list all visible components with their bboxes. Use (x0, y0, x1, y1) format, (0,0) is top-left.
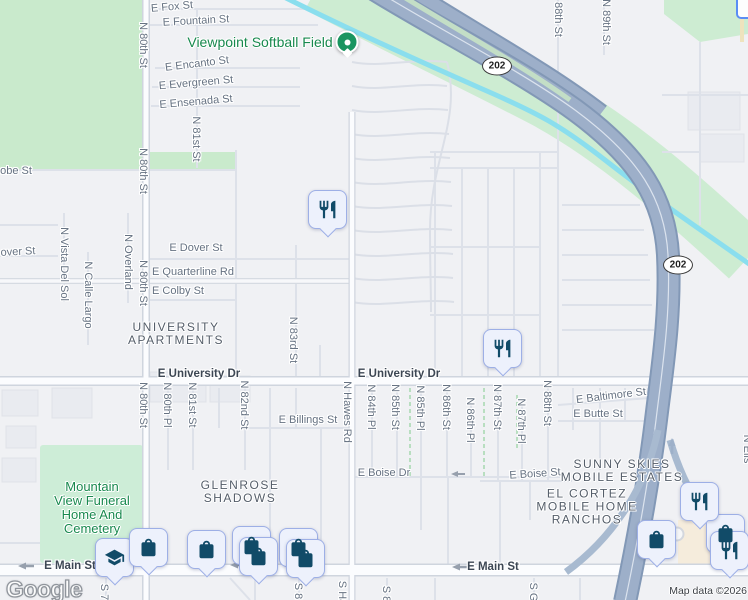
street-label-vertical: N 86th St (440, 384, 452, 430)
street-label-vertical: N 82nd St (238, 381, 250, 430)
area-label: UNIVERSITY APARTMENTS (128, 321, 224, 347)
subdivision-roads (352, 61, 454, 312)
shopping-bag-icon (196, 539, 217, 560)
street-label: E Butte St (573, 408, 623, 420)
street-label: E Main St (467, 561, 519, 573)
restaurant-icon (492, 338, 513, 359)
park-label: Viewpoint Softball Field (187, 35, 332, 49)
street-label-vertical: S 8 (292, 583, 304, 600)
street-label: E University Dr (358, 368, 440, 380)
google-logo[interactable]: Google (6, 576, 82, 600)
map-canvas[interactable]: E Fox StE Fountain StE Encanto StE Everg… (0, 0, 748, 600)
street-label-vertical: N Hawes Rd (341, 381, 353, 443)
route-shield: 202 (482, 57, 512, 76)
street-label-vertical: N 85th Pl (414, 385, 426, 430)
street-label: E Boise Dr (358, 467, 411, 479)
street-label: E Colby St (152, 285, 204, 297)
route-shield: 202 (663, 256, 693, 275)
restaurant-pin[interactable] (483, 329, 522, 368)
street-label-vertical: N 80th Pl (161, 382, 173, 427)
street-label-vertical: N 84th Pl (365, 384, 377, 429)
park-poi-marker[interactable] (336, 31, 359, 54)
street-label: obe St (0, 165, 32, 177)
map-attribution: Map data ©2026 (669, 585, 747, 597)
restaurant-icon (317, 199, 338, 220)
street-label-vertical: N 87th St (491, 384, 503, 430)
shopping-bag-pin[interactable] (637, 520, 676, 559)
shopping-bag-icon (138, 537, 159, 558)
street-label-vertical: N 83rd St (287, 317, 299, 363)
street-label-vertical: N 81st St (190, 116, 202, 161)
area-label: SUNNY SKIES MOBILE ESTATES (561, 458, 684, 484)
street-label-vertical: N 87th Pl (515, 398, 527, 443)
street-label-vertical: S 7 (98, 584, 110, 600)
street-label: E Main St (44, 560, 96, 572)
street-label: E Billings St (279, 414, 338, 426)
street-label-vertical: S G (527, 583, 539, 600)
street-label-vertical: S 8 (380, 586, 392, 600)
street-label-vertical: N 81st St (186, 382, 198, 427)
graduation-cap-icon (104, 547, 125, 568)
street-label-vertical: N 86th Pl (464, 397, 476, 442)
street-label-vertical: N Ells (741, 435, 748, 464)
street-label-vertical: N 85th St (389, 384, 401, 430)
street-label-vertical: N 80th St (137, 22, 149, 68)
restaurant-pin[interactable] (308, 190, 347, 229)
shopping-bag-pin[interactable] (129, 528, 168, 567)
street-label: E University Dr (158, 368, 240, 380)
street-label: E Dover St (169, 242, 222, 254)
street-label-vertical: N Vista Del Sol (58, 227, 70, 301)
shopping-bag-icon (248, 546, 269, 567)
area-label: GLENROSE SHADOWS (201, 479, 280, 505)
restaurant-icon (689, 491, 710, 512)
restaurant-pin[interactable] (680, 482, 719, 521)
shopping-bag-pin[interactable] (187, 530, 226, 569)
street-label-vertical: N 88th St (552, 0, 564, 37)
street-label-vertical: N 80th St (137, 260, 149, 306)
shopping-bag-icon (295, 548, 316, 569)
street-label: over St (0, 245, 35, 259)
street-label-vertical: N 88th St (541, 380, 553, 426)
street-label-vertical: N 80th St (137, 148, 149, 194)
park-label: Mountain View Funeral Home And Cemetery (54, 480, 130, 536)
street-label-vertical: N 89th St (600, 0, 612, 45)
area-label: EL CORTEZ MOBILE HOME RANCHOS (536, 488, 637, 527)
corner-control[interactable] (736, 0, 748, 19)
restaurant-icon (719, 540, 740, 561)
street-label-vertical: N Overland (122, 234, 134, 290)
street-label: E Quarterline Rd (152, 266, 234, 278)
shopping-bag-icon (646, 529, 667, 550)
street-label-vertical: N 80th St (137, 382, 149, 428)
edge-detail (740, 16, 744, 42)
street-label-vertical: N Calle Largo (82, 261, 94, 328)
street-label-vertical: S Haw (336, 581, 348, 600)
